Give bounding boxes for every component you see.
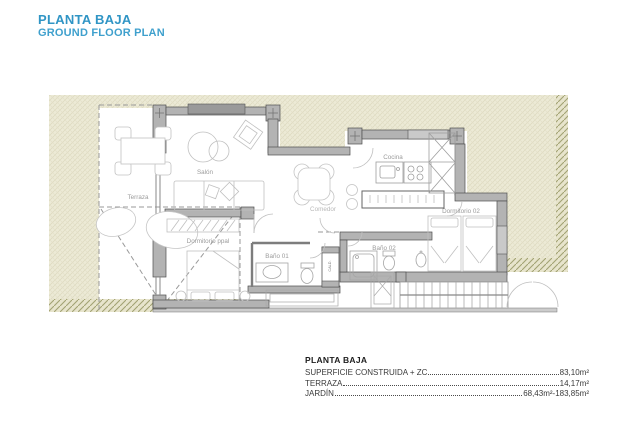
- room-label-salon: Salón: [197, 169, 214, 176]
- salon-furniture: [174, 120, 264, 210]
- legend-value: 14,17m²: [560, 379, 589, 388]
- page-title: PLANTA BAJA: [38, 12, 165, 27]
- title-block: PLANTA BAJA GROUND FLOOR PLAN: [38, 12, 165, 40]
- room-label-bano-01: Baño 01: [265, 253, 289, 260]
- room-label-dormitorio-02: Dormitorio 02: [442, 208, 480, 215]
- comedor-furniture: [294, 164, 334, 205]
- legend-label: JARDÍN: [305, 389, 334, 398]
- legend-row-terraza: TERRAZA 14,17m²: [305, 377, 589, 387]
- dotted-leader: [428, 374, 558, 375]
- room-label-caldera: CALD.: [328, 260, 332, 271]
- legend-row-jardin: JARDÍN 68,43m²-183,85m²: [305, 388, 589, 398]
- floor-plan-page: Terraza Salón Cocina Comedor Dormitorio …: [0, 0, 630, 423]
- kitchen-fittings: [376, 133, 455, 193]
- staircase: [400, 282, 508, 308]
- legend-value: 83,10m²: [560, 368, 589, 377]
- dotted-leader: [343, 385, 558, 386]
- south-facade: [153, 308, 557, 312]
- legend-heading: PLANTA BAJA: [305, 355, 589, 365]
- areas-legend: PLANTA BAJA SUPERFICIE CONSTRUIDA + ZC 8…: [305, 355, 589, 398]
- legend-label: SUPERFICIE CONSTRUIDA + ZC: [305, 368, 427, 377]
- room-label-bano-02: Baño 02: [372, 245, 396, 252]
- room-label-dormitorio-ppal: Dormitorio ppal: [187, 238, 230, 245]
- dotted-leader: [335, 395, 522, 396]
- bedroom2-furniture: [428, 216, 496, 271]
- room-label-comedor: Comedor: [310, 206, 336, 213]
- terrace-furniture: [115, 127, 171, 175]
- page-subtitle: GROUND FLOOR PLAN: [38, 27, 165, 40]
- legend-row-superficie: SUPERFICIE CONSTRUIDA + ZC 83,10m²: [305, 367, 589, 377]
- legend-label: TERRAZA: [305, 379, 342, 388]
- bathroom1: [252, 243, 314, 287]
- legend-value: 68,43m²-183,85m²: [523, 389, 589, 398]
- room-label-terraza: Terraza: [128, 194, 149, 201]
- room-label-cocina: Cocina: [383, 154, 403, 161]
